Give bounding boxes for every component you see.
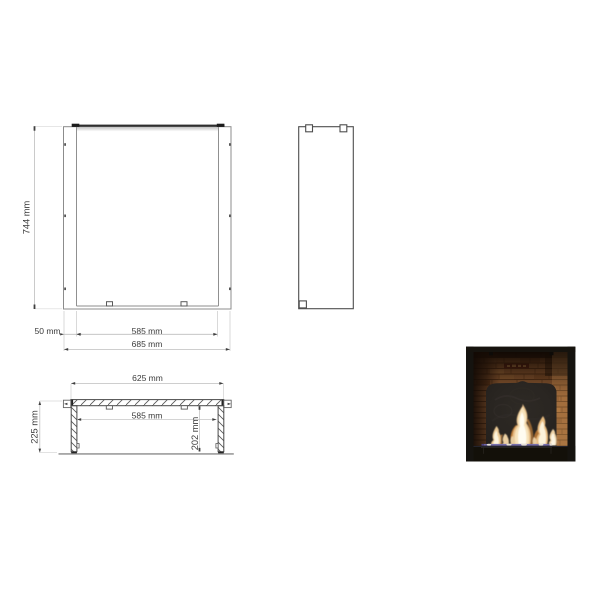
- svg-text:50 mm: 50 mm: [35, 326, 61, 336]
- svg-text:685 mm: 685 mm: [132, 339, 163, 349]
- svg-text:744 mm: 744 mm: [22, 200, 32, 234]
- svg-text:202 mm: 202 mm: [190, 416, 200, 450]
- svg-text:585 mm: 585 mm: [132, 410, 163, 420]
- svg-text:625 mm: 625 mm: [132, 373, 163, 383]
- svg-text:225 mm: 225 mm: [30, 410, 40, 444]
